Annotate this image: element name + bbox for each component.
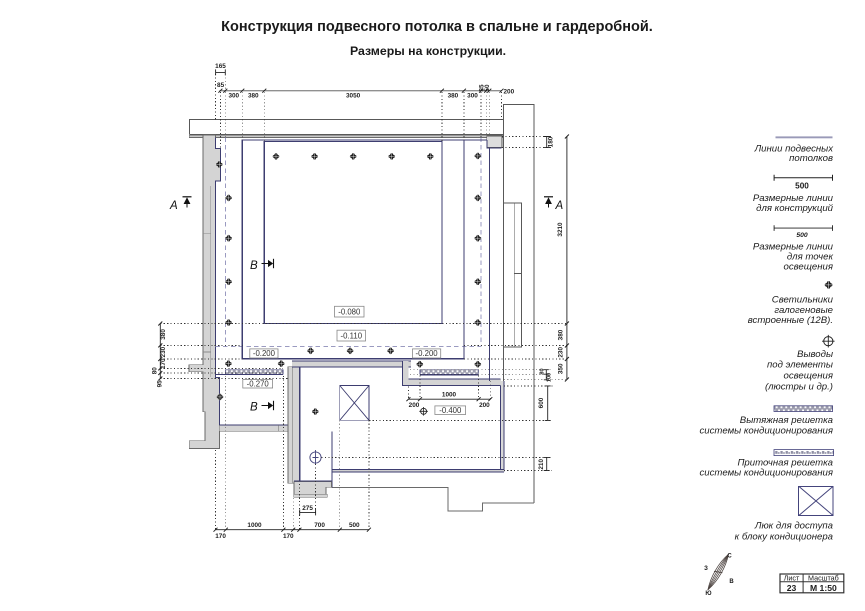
svg-text:Лист: Лист bbox=[784, 574, 800, 583]
svg-text:1000: 1000 bbox=[247, 522, 262, 529]
svg-text:потолков: потолков bbox=[789, 153, 833, 164]
svg-text:80: 80 bbox=[152, 367, 159, 375]
svg-text:системы кондиционирования: системы кондиционирования bbox=[699, 425, 833, 436]
svg-text:80: 80 bbox=[540, 368, 546, 374]
svg-text:Масштаб: Масштаб bbox=[808, 574, 839, 583]
svg-text:A: A bbox=[555, 200, 564, 212]
svg-text:(люстры и др.): (люстры и др.) bbox=[765, 381, 833, 392]
svg-text:системы кондиционирования: системы кондиционирования bbox=[699, 467, 833, 478]
svg-text:500: 500 bbox=[349, 522, 360, 529]
svg-text:-0.110: -0.110 bbox=[341, 331, 363, 340]
svg-text:Ю: Ю bbox=[705, 591, 711, 597]
svg-text:350: 350 bbox=[558, 363, 565, 374]
svg-text:170: 170 bbox=[160, 358, 167, 369]
svg-text:3210: 3210 bbox=[557, 222, 564, 237]
svg-text:-0.200: -0.200 bbox=[416, 349, 439, 358]
svg-text:380: 380 bbox=[248, 93, 259, 100]
svg-text:230: 230 bbox=[558, 347, 565, 358]
svg-text:1000: 1000 bbox=[442, 392, 457, 399]
svg-text:500: 500 bbox=[796, 232, 808, 239]
svg-text:освещения: освещения bbox=[783, 370, 833, 381]
svg-text:Размеры на конструкции.: Размеры на конструкции. bbox=[350, 44, 506, 58]
svg-text:700: 700 bbox=[314, 522, 325, 529]
svg-text:к блоку кондиционера: к блоку кондиционера bbox=[735, 532, 833, 543]
svg-text:под элементы: под элементы bbox=[767, 360, 833, 371]
svg-text:275: 275 bbox=[302, 505, 313, 512]
svg-text:С: С bbox=[727, 554, 732, 560]
svg-text:З: З bbox=[704, 566, 708, 572]
svg-text:-0.270: -0.270 bbox=[247, 379, 270, 388]
svg-text:380: 380 bbox=[448, 93, 459, 100]
svg-text:3050: 3050 bbox=[346, 93, 361, 100]
svg-text:200: 200 bbox=[504, 89, 515, 96]
svg-text:95: 95 bbox=[157, 380, 164, 388]
svg-text:300: 300 bbox=[228, 93, 239, 100]
svg-text:600: 600 bbox=[538, 397, 545, 408]
svg-text:50: 50 bbox=[484, 84, 491, 92]
svg-text:A: A bbox=[169, 200, 178, 212]
svg-text:для конструкций: для конструкций bbox=[756, 203, 833, 214]
svg-text:85: 85 bbox=[217, 82, 225, 89]
svg-text:210: 210 bbox=[538, 459, 545, 470]
svg-text:380: 380 bbox=[160, 329, 167, 340]
svg-text:165: 165 bbox=[215, 63, 226, 70]
svg-text:B: B bbox=[250, 402, 258, 414]
svg-text:Выводы: Выводы bbox=[797, 349, 833, 360]
svg-text:380: 380 bbox=[558, 329, 565, 340]
svg-text:23: 23 bbox=[787, 583, 797, 593]
svg-text:освещения: освещения bbox=[783, 262, 833, 273]
svg-text:300: 300 bbox=[467, 93, 478, 100]
svg-text:230: 230 bbox=[160, 346, 167, 357]
svg-text:180: 180 bbox=[548, 136, 555, 147]
svg-text:встроенные (12В).: встроенные (12В). bbox=[748, 315, 833, 326]
svg-text:М 1:50: М 1:50 bbox=[810, 583, 837, 593]
svg-text:500: 500 bbox=[795, 182, 809, 191]
svg-text:Люк для доступа: Люк для доступа bbox=[754, 521, 833, 532]
svg-text:200: 200 bbox=[409, 402, 420, 409]
svg-text:-0.200: -0.200 bbox=[253, 349, 276, 358]
svg-text:100: 100 bbox=[547, 373, 553, 382]
svg-text:170: 170 bbox=[215, 533, 226, 540]
svg-text:-0.400: -0.400 bbox=[439, 406, 462, 415]
svg-text:В: В bbox=[729, 579, 734, 585]
svg-text:170: 170 bbox=[283, 533, 294, 540]
svg-text:Конструкция подвесного потолка: Конструкция подвесного потолка в спальне… bbox=[221, 19, 653, 35]
svg-text:-0.080: -0.080 bbox=[338, 307, 361, 316]
svg-text:B: B bbox=[250, 260, 258, 272]
svg-text:200: 200 bbox=[479, 402, 490, 409]
